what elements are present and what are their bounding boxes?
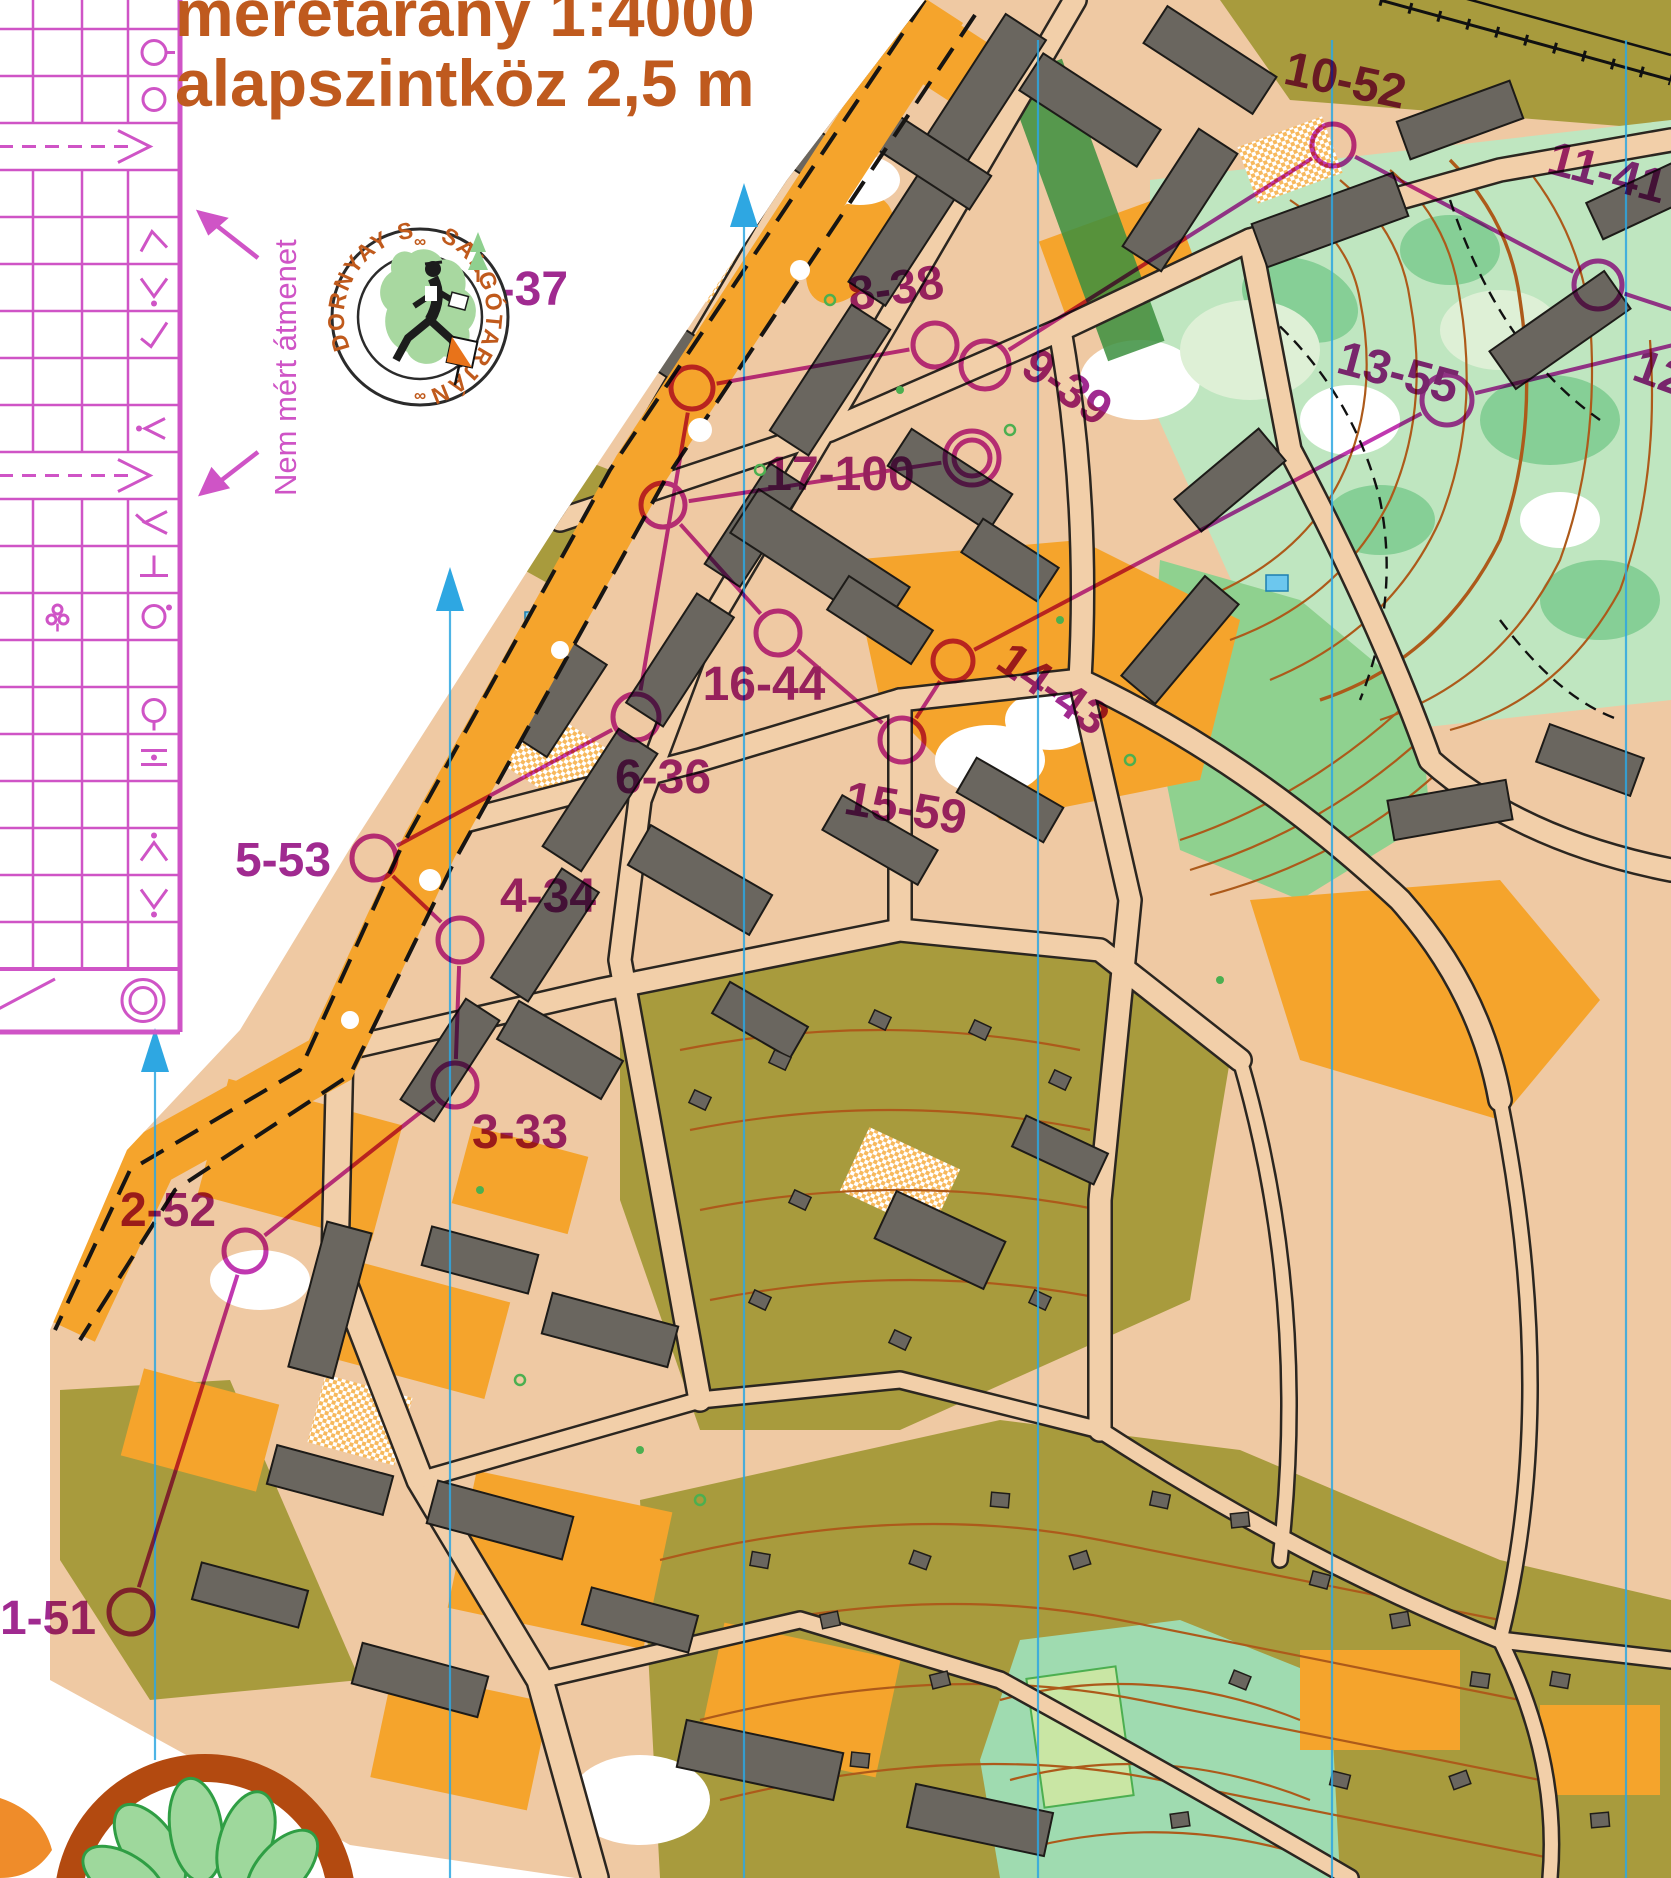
map-artwork (0, 0, 1671, 1878)
small-house (1230, 1512, 1249, 1528)
north-arrow-icon (141, 1028, 169, 1072)
unmeasured-passage-note: Nem mért átmenet (200, 213, 303, 496)
control-label: 16-44 (703, 658, 826, 711)
small-house (1150, 1491, 1171, 1508)
map-canvas: 1-512-523-334-345-536-367-378-389-3910-5… (0, 0, 1671, 1878)
note-arrow-upper (212, 222, 258, 258)
control-label: 17-100 (765, 448, 914, 501)
small-house (1470, 1672, 1490, 1688)
small-house (1590, 1812, 1609, 1828)
orienteering-map-sheet: 1-512-523-334-345-536-367-378-389-3910-5… (0, 0, 1671, 1878)
terrain-patch (1540, 1705, 1660, 1795)
small-house (990, 1492, 1009, 1508)
north-arrow-icon (730, 183, 758, 227)
club-logo-separator-top: ∞ (414, 232, 426, 251)
terrain-patch (1540, 560, 1660, 640)
club-logo-separator-bottom: ∞ (414, 386, 426, 405)
control-label: 2-52 (120, 1184, 216, 1237)
small-house (1390, 1612, 1410, 1629)
city-logo (0, 1768, 342, 1878)
control-description-sheet (0, 0, 180, 1032)
small-house (750, 1552, 770, 1569)
bridge-icon (575, 292, 625, 344)
small-house (820, 1611, 841, 1628)
map-header: méretarány 1:4000 alapszintköz 2,5 m (175, 0, 755, 120)
small-house (850, 1752, 869, 1768)
margin-art-fragment (0, 1798, 52, 1878)
control-label: 5-53 (235, 834, 331, 887)
note-text: Nem mért átmenet (268, 239, 303, 496)
control-label: 6-36 (615, 751, 711, 804)
terrain-patch (1180, 300, 1320, 400)
small-house (1170, 1812, 1190, 1828)
small-house (1550, 1672, 1570, 1689)
control-label: 1-51 (0, 1592, 96, 1645)
north-arrow-icon (436, 567, 464, 611)
contour-interval-label: alapszintköz 2,5 m (175, 46, 755, 120)
note-arrow-lower-head-icon (202, 471, 226, 493)
control-label: 4-34 (500, 870, 596, 923)
scale-label: méretarány 1:4000 (175, 0, 755, 50)
control-label: 3-33 (472, 1106, 568, 1159)
terrain-patch (1300, 1650, 1460, 1750)
terrain-patch (1520, 492, 1600, 548)
